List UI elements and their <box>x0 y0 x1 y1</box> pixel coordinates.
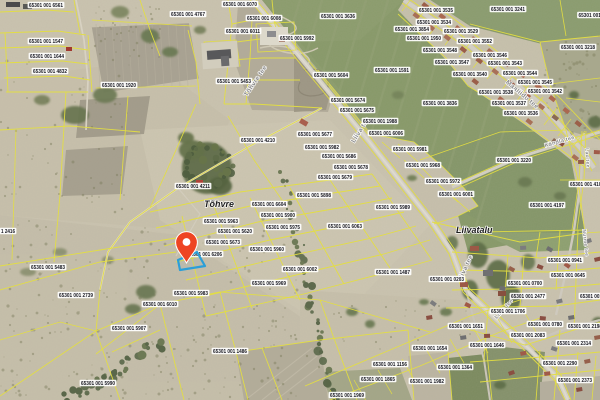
svg-text:65301 001 3546: 65301 001 3546 <box>473 53 507 59</box>
svg-text:65301 001 2: 65301 001 2 <box>580 294 600 300</box>
svg-text:65301 001 3636: 65301 001 3636 <box>321 14 355 20</box>
svg-text:65301 001 2290: 65301 001 2290 <box>543 361 577 367</box>
svg-text:65301 001 2373: 65301 001 2373 <box>558 378 592 384</box>
svg-text:65301 001 3540: 65301 001 3540 <box>453 72 487 78</box>
svg-text:Tõhvre: Tõhvre <box>204 199 234 209</box>
svg-text:65301 001 3535: 65301 001 3535 <box>419 8 453 14</box>
svg-text:65301 001 6001: 65301 001 6001 <box>439 192 473 198</box>
svg-text:65301 001 1646: 65301 001 1646 <box>470 343 504 349</box>
svg-text:65301 001 6010: 65301 001 6010 <box>143 302 177 308</box>
svg-text:65301 001 1591: 65301 001 1591 <box>375 68 409 74</box>
svg-text:65301 001 5969: 65301 001 5969 <box>252 281 286 287</box>
svg-text:65301 001 3241: 65301 001 3241 <box>491 7 525 13</box>
svg-text:65301 001 1982: 65301 001 1982 <box>410 379 444 385</box>
svg-text:65301 001 5963: 65301 001 5963 <box>204 219 238 225</box>
svg-text:65301 001 5898: 65301 001 5898 <box>297 193 331 199</box>
svg-text:65301 001 3536: 65301 001 3536 <box>504 111 538 117</box>
svg-text:65301 001 3854: 65301 001 3854 <box>395 27 429 33</box>
svg-text:65301 001 3534: 65301 001 3534 <box>417 20 451 26</box>
svg-text:65301 001 2083: 65301 001 2083 <box>511 333 545 339</box>
svg-text:65301 001 4832: 65301 001 4832 <box>33 69 67 75</box>
svg-text:65301 001 5960: 65301 001 5960 <box>250 247 284 253</box>
svg-text:65301 001 2314: 65301 001 2314 <box>557 341 591 347</box>
svg-text:65301 001 5968: 65301 001 5968 <box>406 163 440 169</box>
svg-text:65301 001 3537: 65301 001 3537 <box>492 101 526 107</box>
svg-text:65301 001 4107: 65301 001 4107 <box>570 182 600 188</box>
svg-text:65301 001 5673: 65301 001 5673 <box>206 240 240 246</box>
svg-text:65301 001 1950: 65301 001 1950 <box>407 36 441 42</box>
svg-text:65301 001 3552: 65301 001 3552 <box>458 39 492 45</box>
svg-text:65301 001 3218: 65301 001 3218 <box>561 45 595 51</box>
svg-text:65301 001 5982: 65301 001 5982 <box>305 145 339 151</box>
svg-text:65301 001 6011: 65301 001 6011 <box>226 29 260 35</box>
svg-text:65301 001 4197: 65301 001 4197 <box>530 203 564 209</box>
svg-text:65301 001 5900: 65301 001 5900 <box>261 213 295 219</box>
svg-text:65301 001 5483: 65301 001 5483 <box>31 265 65 271</box>
svg-text:65301 001 1969: 65301 001 1969 <box>330 393 364 399</box>
svg-text:65301 001 1706: 65301 001 1706 <box>491 309 525 315</box>
svg-text:Liivatalu: Liivatalu <box>456 225 493 235</box>
svg-text:65301 001 1156: 65301 001 1156 <box>373 362 407 368</box>
svg-text:65301 001 1644: 65301 001 1644 <box>30 54 64 60</box>
svg-text:65301 001 5992: 65301 001 5992 <box>280 36 314 42</box>
svg-text:65301 001 5675: 65301 001 5675 <box>340 108 374 114</box>
svg-text:65301 001 0645: 65301 001 0645 <box>551 273 585 279</box>
svg-text:65301 001 6006: 65301 001 6006 <box>369 131 403 137</box>
svg-text:65301 001 5604: 65301 001 5604 <box>314 73 348 79</box>
svg-text:65301 001 0941: 65301 001 0941 <box>548 258 582 264</box>
svg-text:65301 001 6604: 65301 001 6604 <box>252 202 286 208</box>
svg-text:1 2416: 1 2416 <box>1 229 15 235</box>
svg-text:65301 001 3529: 65301 001 3529 <box>444 29 478 35</box>
svg-text:65301 001 5989: 65301 001 5989 <box>376 205 410 211</box>
svg-text:65301 001 3547: 65301 001 3547 <box>435 60 469 66</box>
svg-text:65301 001 0203: 65301 001 0203 <box>430 277 464 283</box>
svg-text:65301 001 5907: 65301 001 5907 <box>112 326 146 332</box>
svg-text:65301 001 5972: 65301 001 5972 <box>426 179 460 185</box>
svg-text:65301 001 1364: 65301 001 1364 <box>438 365 472 371</box>
svg-text:65301 001 2477: 65301 001 2477 <box>511 294 545 300</box>
svg-text:65301 001 2198: 65301 001 2198 <box>568 324 600 330</box>
svg-text:65301 001 4767: 65301 001 4767 <box>171 12 205 18</box>
svg-text:65301 001 5981: 65301 001 5981 <box>393 147 427 153</box>
svg-text:65301 001 5453: 65301 001 5453 <box>217 79 251 85</box>
svg-text:65301 001 4211: 65301 001 4211 <box>176 184 210 190</box>
svg-text:65301 001 1651: 65301 001 1651 <box>449 324 483 330</box>
svg-text:65301 001 1988: 65301 001 1988 <box>363 119 397 125</box>
svg-text:65301 001 4210: 65301 001 4210 <box>241 138 275 144</box>
svg-text:65301 001 0780: 65301 001 0780 <box>528 322 562 328</box>
svg-text:65301 001 6063: 65301 001 6063 <box>328 224 362 230</box>
svg-text:65301 001 5677: 65301 001 5677 <box>298 132 332 138</box>
svg-text:65301 001 1487: 65301 001 1487 <box>376 270 410 276</box>
svg-text:65301 001 1486: 65301 001 1486 <box>213 349 247 355</box>
svg-text:65301 001 5620: 65301 001 5620 <box>218 229 252 235</box>
svg-text:65301 001 2739: 65301 001 2739 <box>59 293 93 299</box>
svg-text:65301 001 6070: 65301 001 6070 <box>223 2 257 8</box>
svg-text:65301 001 3543: 65301 001 3543 <box>488 61 522 67</box>
svg-text:65301 001 3544: 65301 001 3544 <box>503 71 537 77</box>
svg-text:65301 001 1920: 65301 001 1920 <box>102 83 136 89</box>
svg-text:65301 001 6002: 65301 001 6002 <box>283 267 317 273</box>
svg-text:65301 001 3538: 65301 001 3538 <box>479 90 513 96</box>
svg-text:65301 001 3542: 65301 001 3542 <box>528 89 562 95</box>
svg-text:65301 001 5686: 65301 001 5686 <box>322 154 356 160</box>
svg-text:65301 001 3220: 65301 001 3220 <box>497 158 531 164</box>
svg-text:65301 001 5975: 65301 001 5975 <box>266 225 300 231</box>
svg-text:65301 001 0700: 65301 001 0700 <box>508 281 542 287</box>
svg-text:65301 001 1654: 65301 001 1654 <box>413 346 447 352</box>
svg-text:65301 001 3836: 65301 001 3836 <box>423 101 457 107</box>
svg-text:65301 001 1865: 65301 001 1865 <box>361 377 395 383</box>
svg-text:65301 001 3548: 65301 001 3548 <box>423 48 457 54</box>
svg-text:65301 001 6008: 65301 001 6008 <box>247 16 281 22</box>
svg-text:65301 001 5990: 65301 001 5990 <box>81 381 115 387</box>
svg-text:65301 001 5679: 65301 001 5679 <box>318 175 352 181</box>
svg-text:65301 001 5674: 65301 001 5674 <box>331 98 365 104</box>
svg-text:65301 001 1547: 65301 001 1547 <box>29 39 63 45</box>
svg-text:65301 001 5983: 65301 001 5983 <box>174 291 208 297</box>
svg-text:65301 001 60: 65301 001 60 <box>579 13 600 19</box>
svg-text:65301 001 3545: 65301 001 3545 <box>518 80 552 86</box>
svg-text:65301 001 5678: 65301 001 5678 <box>334 165 368 171</box>
svg-text:65301 001 6561: 65301 001 6561 <box>29 3 63 9</box>
